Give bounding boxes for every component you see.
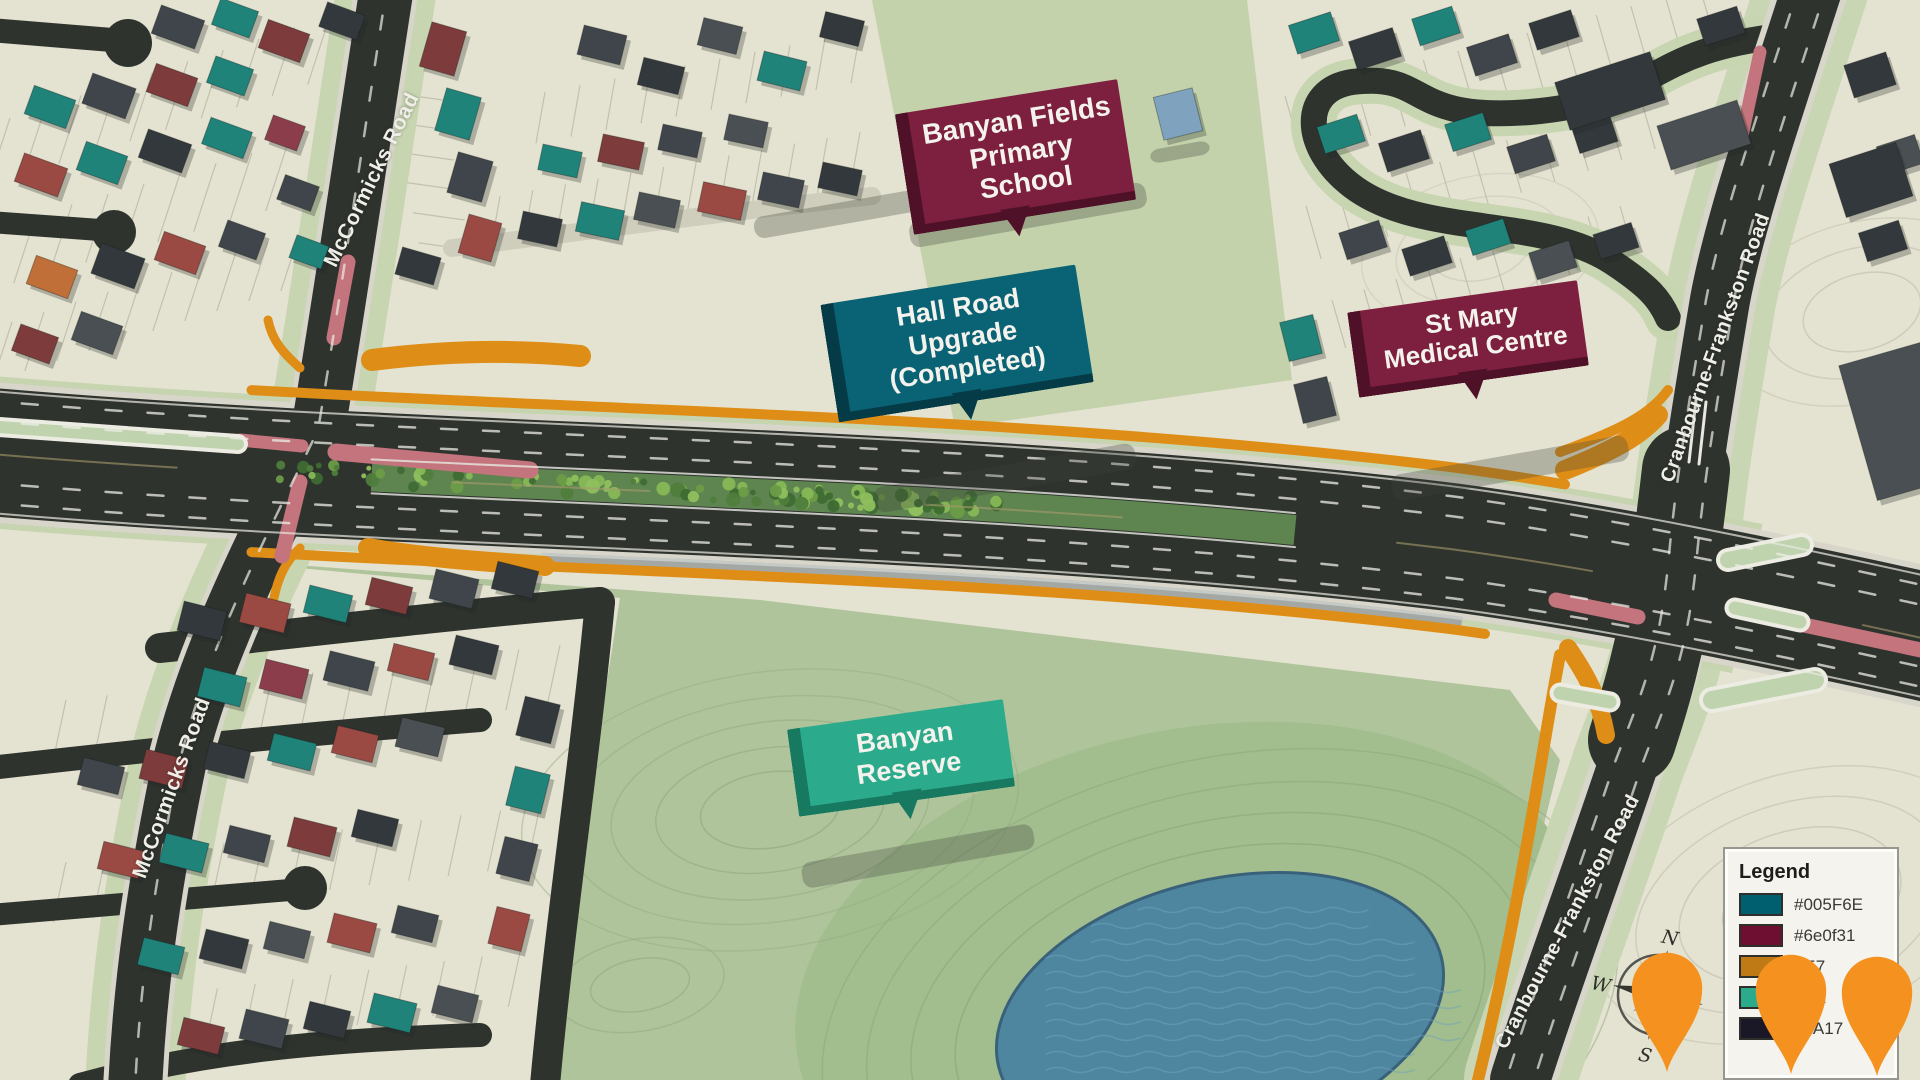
legend-item: #6e0f31 — [1739, 924, 1883, 947]
map-pin-icon[interactable] — [1833, 956, 1920, 1080]
legend-title: Legend — [1739, 861, 1883, 884]
legend-item-label: #005F6E — [1794, 895, 1863, 915]
sign-pointer-tail — [1000, 205, 1034, 238]
sign-pointer-tail — [892, 788, 926, 821]
legend-item-label: #6e0f31 — [1794, 926, 1855, 946]
compass-west-label: W — [1589, 972, 1614, 998]
hall-road-upgrade-map: McCormicks Road McCormicks Road Cranbour… — [0, 0, 1920, 1080]
map-pin-icon[interactable] — [1747, 954, 1835, 1078]
sign-text-line1: Banyan Reserve — [811, 710, 1003, 796]
sign-pointer-tail — [952, 388, 986, 421]
sign-pointer-tail — [1457, 368, 1491, 401]
compass-north-label: N — [1659, 926, 1682, 951]
legend-item: #005F6E — [1739, 893, 1883, 916]
legend-color-swatch — [1739, 893, 1783, 916]
legend-color-swatch — [1739, 924, 1783, 947]
map-pin-icon[interactable] — [1623, 952, 1711, 1076]
